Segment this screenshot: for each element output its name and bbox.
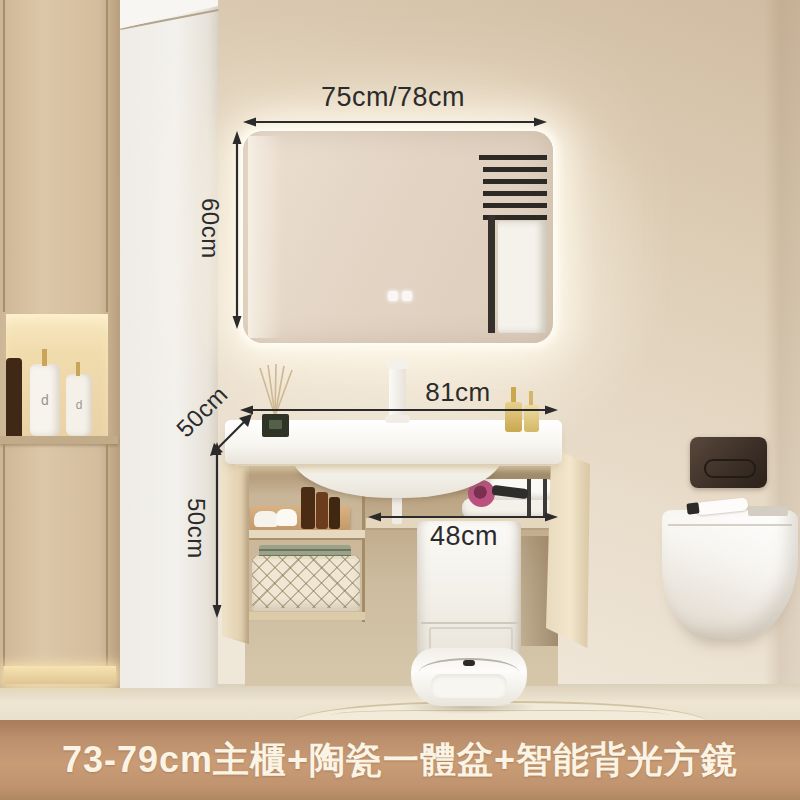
left-cabinet: d d <box>0 0 120 688</box>
robot-inner-step <box>431 674 507 698</box>
spray-bottle-cap <box>686 502 699 514</box>
towel-reflection <box>498 221 546 333</box>
doorway-wall <box>120 0 218 688</box>
counter-width-arrow <box>240 403 558 417</box>
shelf-board <box>245 530 365 540</box>
toilet-flat-item <box>748 506 788 516</box>
white-cup <box>276 509 297 526</box>
pump-bottle: d <box>66 374 92 436</box>
mirror-height-arrow <box>230 131 244 329</box>
cabinet-door-seam <box>3 444 5 666</box>
pump-bottle: d <box>30 364 60 436</box>
mirror-width-arrow <box>243 115 547 129</box>
amber-bottle <box>316 492 328 529</box>
pump-spout <box>42 349 47 366</box>
cabinet-height-arrow <box>210 442 224 618</box>
dark-bottle <box>6 358 22 436</box>
towel-rack-reflection <box>479 155 547 160</box>
cabinet-toe-light <box>4 666 116 684</box>
vanity-door-right-open <box>546 448 590 648</box>
towel-rack-bar <box>483 191 547 196</box>
cabinet-niche: d d <box>6 314 108 436</box>
clearance-width-arrow <box>368 510 558 524</box>
amber-bottle <box>301 487 315 529</box>
cabinet-shelf-board <box>0 436 118 444</box>
bottle-label: d <box>76 398 83 412</box>
faucet-cap <box>386 359 409 369</box>
mirror-light-band <box>248 136 282 338</box>
amber-bottle <box>329 497 340 529</box>
cabinet-door-seam <box>106 444 108 666</box>
mirror-height-label: 60cm <box>196 198 224 258</box>
gold-bottle-neck <box>511 387 516 402</box>
cabinet-door-seam <box>106 0 108 312</box>
clearance-width-label: 48cm <box>414 521 514 552</box>
caption-text: 73-79cm主櫃+陶瓷一體盆+智能背光方鏡 <box>62 736 738 785</box>
shelf-bottom-board <box>245 612 365 620</box>
vanity-door-left-open <box>222 452 249 644</box>
towel-rack-bar <box>483 203 547 208</box>
towel-rack-bar <box>483 179 547 184</box>
backlit-mirror <box>243 131 553 343</box>
mirror-touch-icon <box>388 291 398 301</box>
pump-spout <box>76 362 80 376</box>
cabinet-door-seam <box>3 0 5 312</box>
reed-diffuser-label <box>269 420 282 429</box>
station-drawer-line <box>421 622 517 624</box>
bathroom-scene: d d <box>0 0 800 800</box>
caption-bar: 73-79cm主櫃+陶瓷一體盆+智能背光方鏡 <box>0 720 800 800</box>
flush-button-outline <box>704 459 756 478</box>
toilet-top-line <box>668 524 792 526</box>
mirror-width-label: 75cm/78cm <box>293 82 493 113</box>
white-cup <box>254 511 278 527</box>
bottle-label: d <box>41 392 49 408</box>
towel-rack-pole <box>488 215 495 333</box>
mirror-touch-icon <box>402 291 412 301</box>
wire-basket-mesh <box>252 556 360 608</box>
cabinet-height-label: 50cm <box>182 498 210 558</box>
towel-rack-bar <box>483 167 547 172</box>
robot-sensor <box>463 660 475 666</box>
